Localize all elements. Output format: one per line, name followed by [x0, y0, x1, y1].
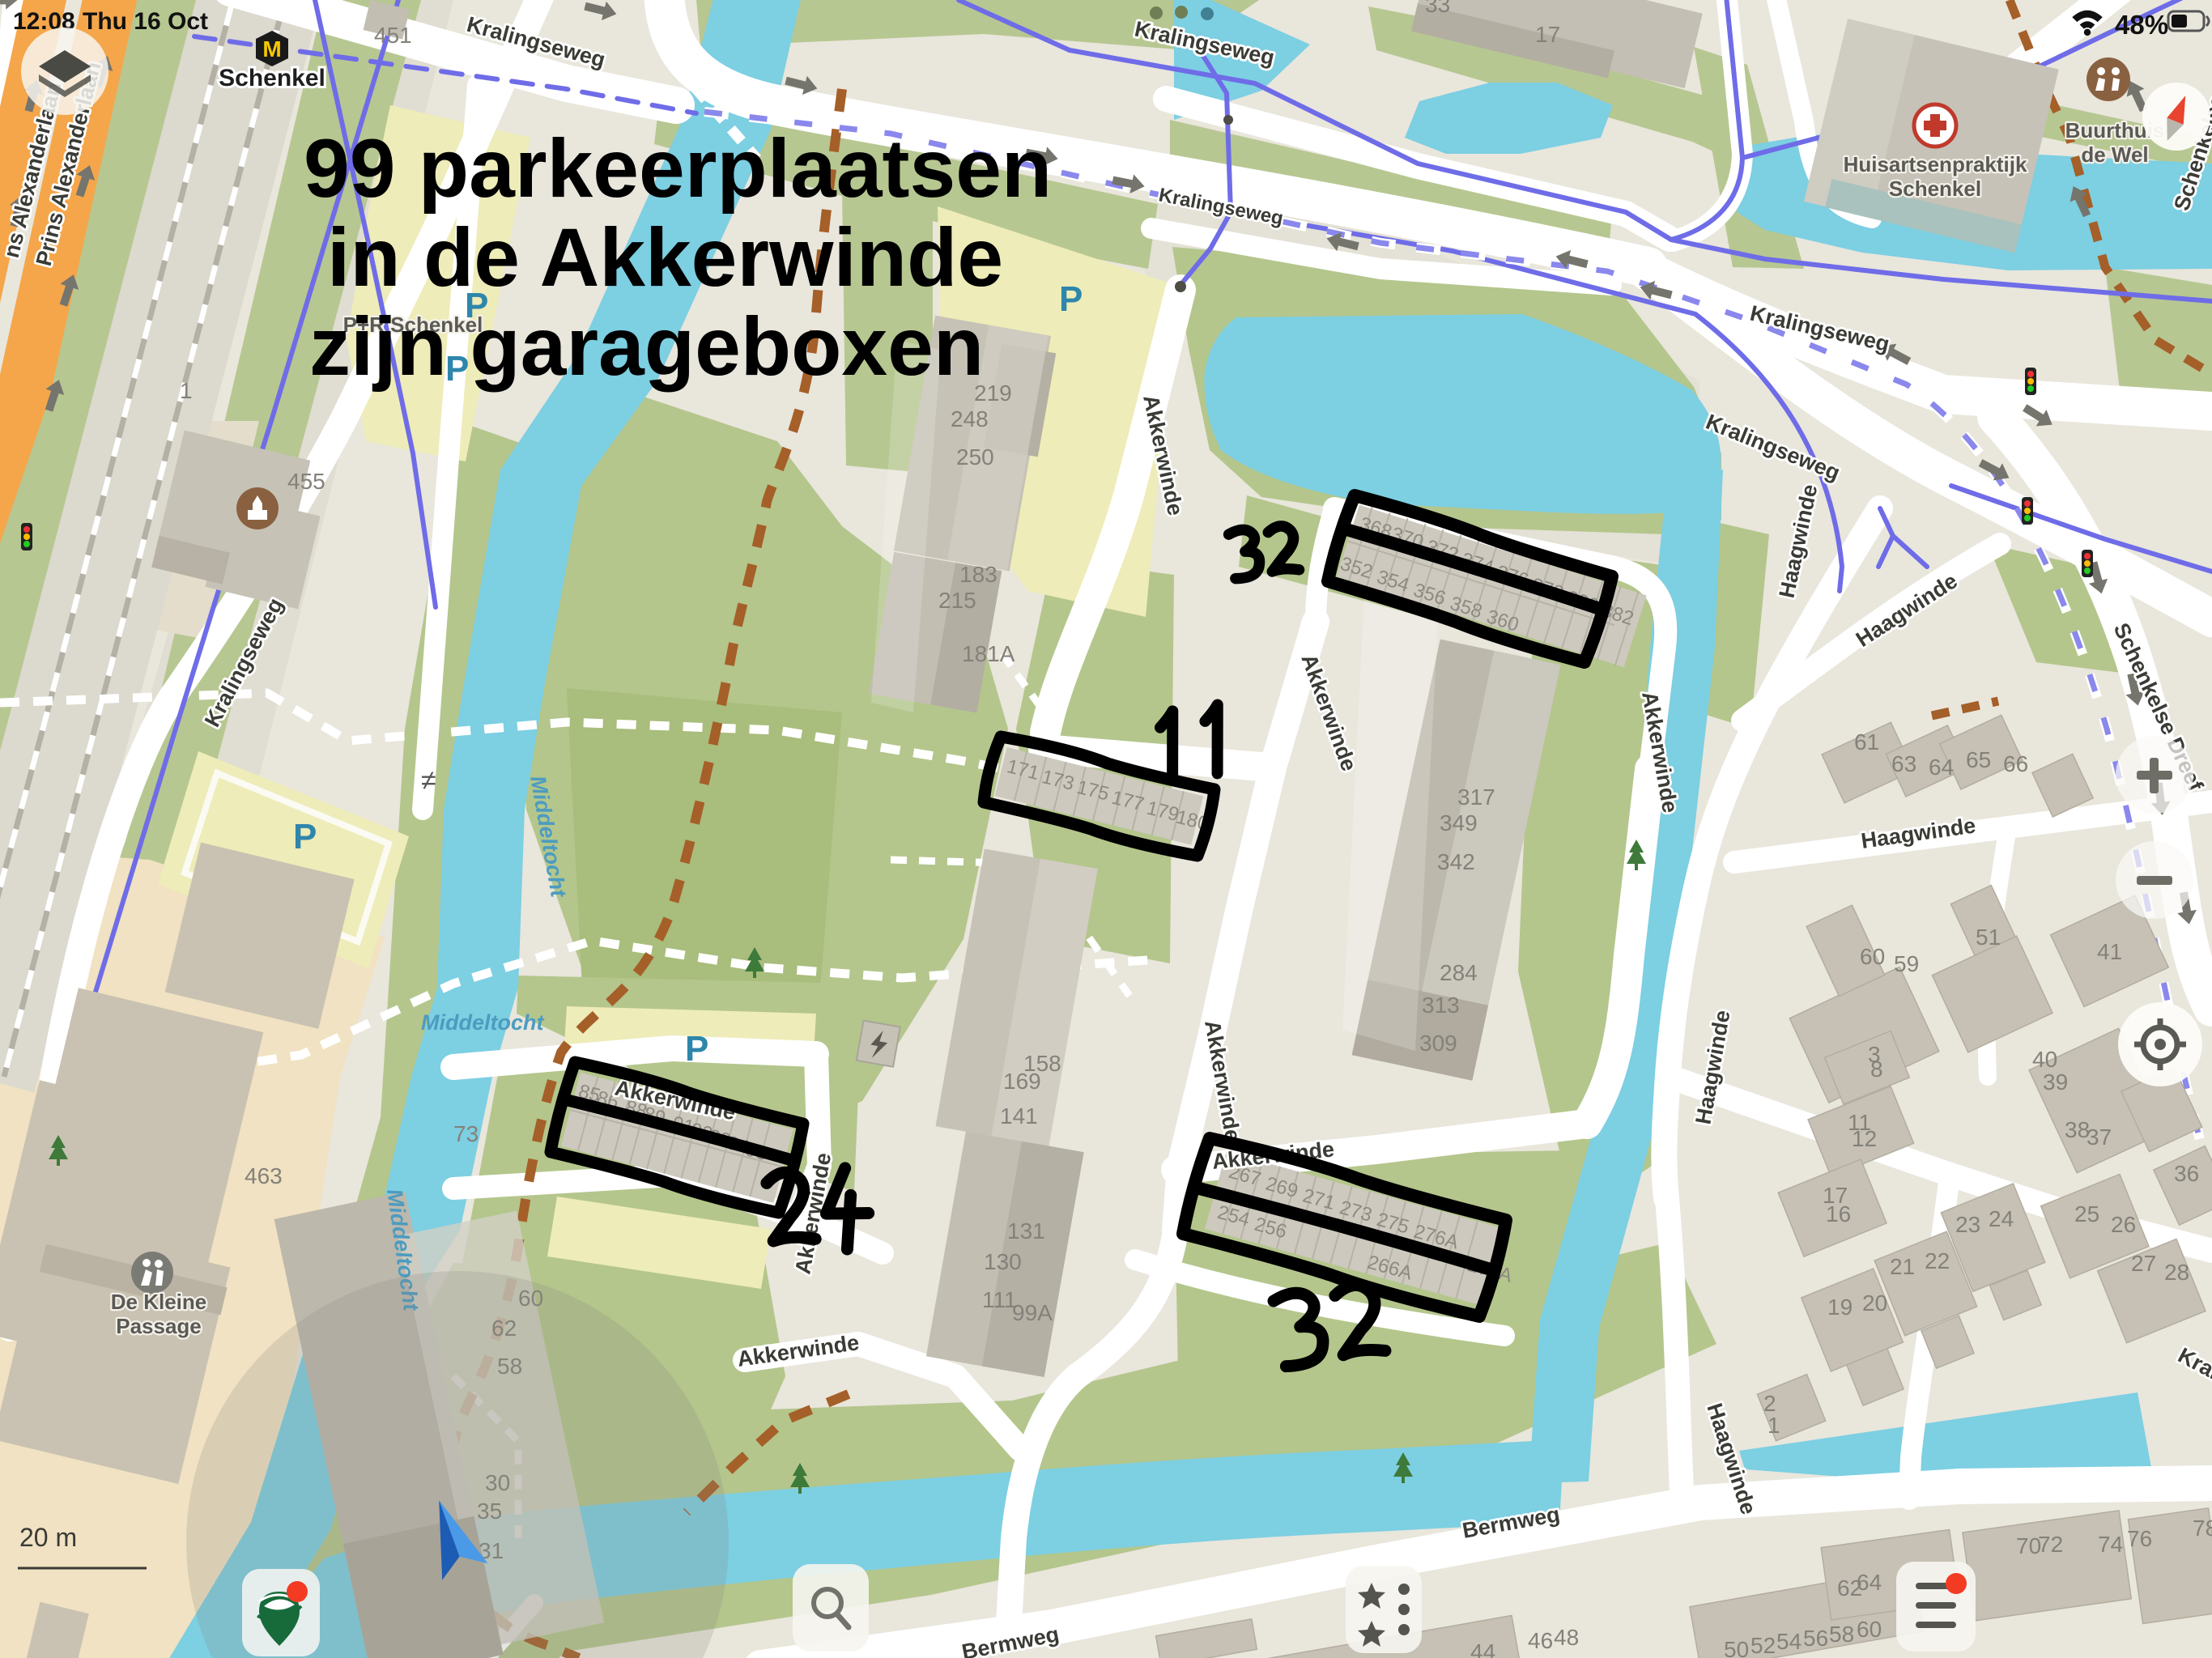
- svg-text:33: 33: [1425, 0, 1450, 17]
- svg-text:54: 54: [1776, 1629, 1802, 1654]
- svg-text:27: 27: [2131, 1251, 2156, 1276]
- svg-text:215: 215: [938, 588, 976, 613]
- svg-text:463: 463: [245, 1163, 283, 1188]
- svg-text:46: 46: [1528, 1628, 1553, 1653]
- svg-text:De Kleine: De Kleine: [111, 1290, 207, 1314]
- svg-text:451: 451: [374, 23, 412, 48]
- svg-text:20: 20: [1862, 1290, 1887, 1316]
- svg-text:66: 66: [2003, 751, 2028, 776]
- svg-text:M: M: [262, 36, 281, 62]
- svg-text:P: P: [1059, 279, 1083, 319]
- svg-text:76: 76: [2127, 1526, 2152, 1551]
- svg-text:61: 61: [1854, 729, 1879, 755]
- svg-text:de Wel: de Wel: [2081, 142, 2148, 167]
- svg-text:250: 250: [956, 444, 994, 470]
- svg-text:130: 130: [984, 1249, 1022, 1274]
- svg-text:17: 17: [1535, 22, 1560, 47]
- svg-text:342: 342: [1437, 849, 1475, 874]
- svg-text:zijn garageboxen: zijn garageboxen: [309, 300, 984, 393]
- svg-text:141: 141: [1000, 1103, 1038, 1129]
- svg-text:52: 52: [1750, 1633, 1776, 1658]
- svg-text:Passage: Passage: [116, 1314, 202, 1338]
- svg-text:455: 455: [287, 469, 325, 494]
- svg-text:12: 12: [1852, 1126, 1877, 1151]
- svg-text:60: 60: [1860, 944, 1885, 969]
- svg-text:Huisartsenpraktijk: Huisartsenpraktijk: [1844, 152, 2027, 176]
- svg-text:58: 58: [1829, 1622, 1854, 1647]
- svg-text:24: 24: [1989, 1206, 2014, 1231]
- svg-text:59: 59: [1894, 951, 1919, 976]
- svg-text:23: 23: [1955, 1212, 1980, 1237]
- svg-text:P: P: [293, 817, 317, 857]
- svg-text:20 m: 20 m: [19, 1523, 77, 1552]
- svg-text:48: 48: [1554, 1625, 1579, 1650]
- svg-text:Middeltocht: Middeltocht: [421, 1010, 544, 1035]
- svg-text:181A: 181A: [962, 641, 1015, 666]
- svg-text:≠: ≠: [421, 765, 436, 796]
- svg-text:36: 36: [2174, 1161, 2199, 1186]
- svg-text:16: 16: [1826, 1201, 1851, 1226]
- svg-text:Schenkel: Schenkel: [1889, 176, 1981, 201]
- svg-text:22: 22: [1925, 1248, 1950, 1273]
- svg-text:64: 64: [1857, 1570, 1882, 1595]
- svg-text:74: 74: [2098, 1532, 2123, 1557]
- svg-text:1: 1: [1767, 1413, 1780, 1438]
- svg-text:1: 1: [180, 378, 193, 403]
- svg-text:169: 169: [1003, 1069, 1041, 1094]
- svg-text:28: 28: [2164, 1260, 2189, 1285]
- svg-text:64: 64: [1929, 755, 1954, 780]
- svg-text:78: 78: [2193, 1516, 2212, 1541]
- svg-text:60: 60: [1857, 1617, 1882, 1642]
- svg-text:19: 19: [1827, 1295, 1853, 1320]
- svg-text:48%: 48%: [2115, 10, 2168, 40]
- svg-text:99A: 99A: [1012, 1300, 1053, 1325]
- svg-text:8: 8: [1870, 1056, 1883, 1082]
- svg-text:183: 183: [959, 562, 998, 587]
- svg-text:in de Akkerwinde: in de Akkerwinde: [327, 211, 1003, 304]
- svg-text:73: 73: [453, 1121, 479, 1146]
- svg-text:40: 40: [2032, 1047, 2057, 1072]
- svg-text:Thu 16 Oct: Thu 16 Oct: [83, 8, 208, 35]
- svg-text:72: 72: [2038, 1532, 2063, 1557]
- svg-text:56: 56: [1803, 1626, 1828, 1651]
- svg-text:50: 50: [1724, 1637, 1749, 1658]
- svg-text:21: 21: [1890, 1254, 1915, 1279]
- svg-text:131: 131: [1007, 1218, 1045, 1243]
- svg-text:317: 317: [1457, 784, 1495, 810]
- svg-text:63: 63: [1891, 751, 1916, 776]
- svg-text:26: 26: [2111, 1212, 2136, 1237]
- svg-text:248: 248: [951, 406, 989, 432]
- svg-text:99 parkeerplaatsen: 99 parkeerplaatsen: [304, 122, 1052, 215]
- svg-text:284: 284: [1440, 960, 1478, 985]
- svg-text:65: 65: [1966, 747, 1991, 772]
- svg-text:41: 41: [2097, 939, 2122, 964]
- svg-text:P: P: [685, 1029, 708, 1069]
- svg-text:25: 25: [2074, 1201, 2099, 1226]
- svg-text:349: 349: [1440, 810, 1478, 835]
- svg-text:39: 39: [2043, 1069, 2068, 1095]
- svg-text:37: 37: [2087, 1124, 2112, 1150]
- svg-text:309: 309: [1419, 1031, 1457, 1056]
- svg-text:51: 51: [1976, 925, 2001, 950]
- svg-text:Schenkel: Schenkel: [219, 65, 325, 91]
- svg-text:313: 313: [1422, 993, 1460, 1018]
- svg-text:44: 44: [1470, 1639, 1495, 1658]
